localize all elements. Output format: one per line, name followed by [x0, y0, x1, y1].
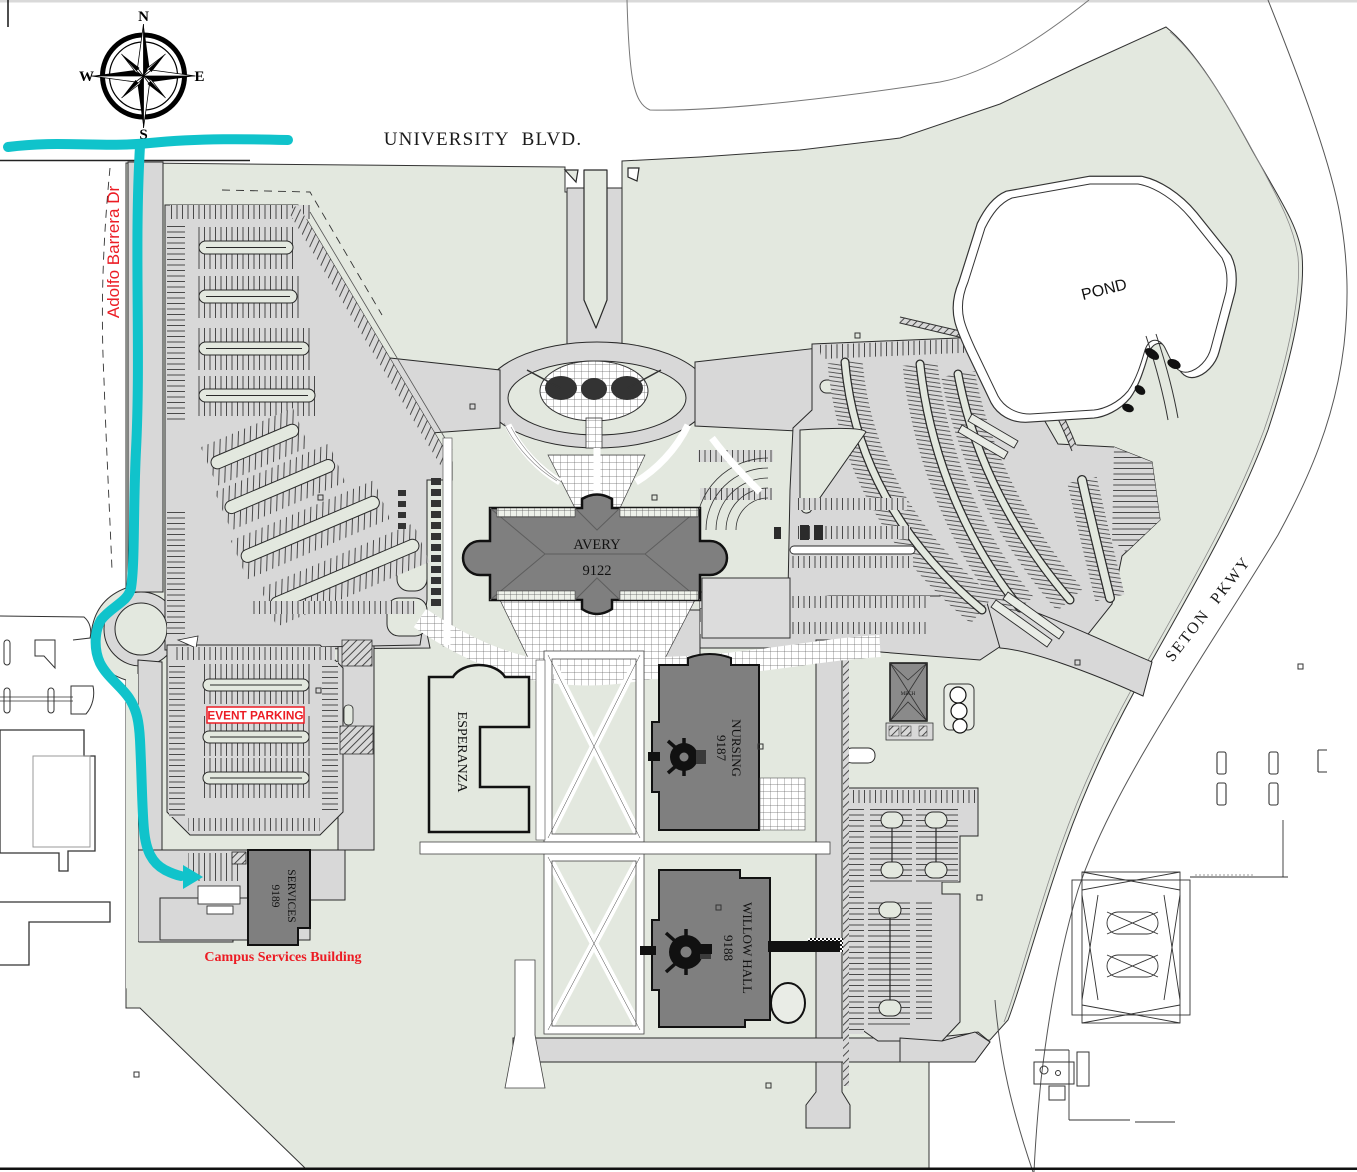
- svg-text:SERVICES: SERVICES: [285, 869, 297, 922]
- svg-text:9188: 9188: [721, 935, 736, 961]
- svg-text:MECH: MECH: [901, 692, 916, 697]
- svg-text:UNIVERSITY BLVD.: UNIVERSITY BLVD.: [384, 129, 583, 150]
- svg-text:EVENT PARKING: EVENT PARKING: [207, 709, 303, 723]
- svg-text:WILLOW HALL: WILLOW HALL: [740, 902, 755, 994]
- svg-text:E: E: [194, 69, 204, 85]
- svg-text:Adolfo Barrera Dr: Adolfo Barrera Dr: [104, 186, 123, 319]
- svg-text:9122: 9122: [583, 563, 612, 579]
- svg-text:N: N: [138, 9, 149, 25]
- svg-text:9189: 9189: [269, 885, 281, 908]
- svg-text:W: W: [79, 69, 94, 85]
- svg-text:AVERY: AVERY: [573, 537, 621, 553]
- svg-text:NURSING: NURSING: [729, 719, 744, 777]
- svg-text:9187: 9187: [714, 735, 729, 762]
- svg-text:Campus Services Building: Campus Services Building: [204, 950, 361, 965]
- svg-text:ESPERANZA: ESPERANZA: [454, 712, 469, 794]
